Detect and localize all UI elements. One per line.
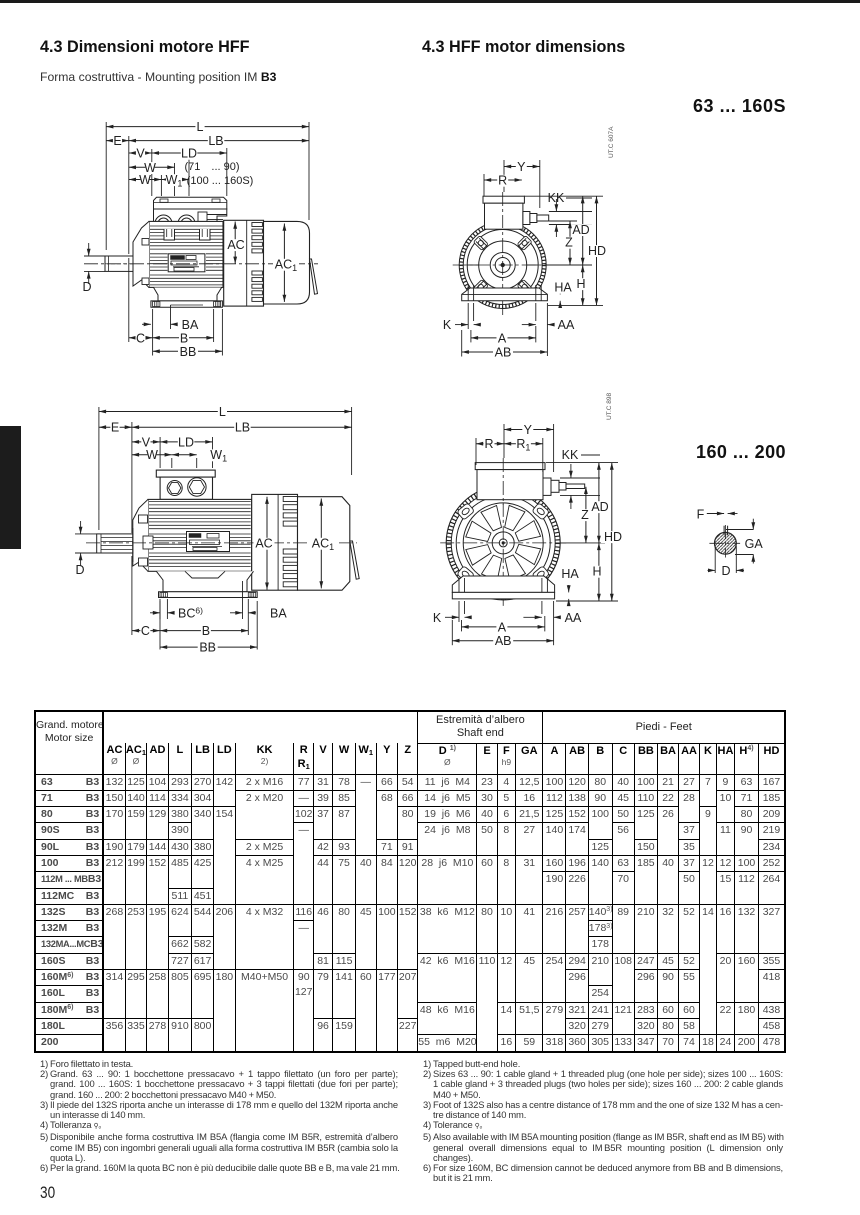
svg-text:UT.C 898: UT.C 898 bbox=[606, 393, 613, 420]
svg-text:D: D bbox=[75, 563, 84, 577]
svg-text:BA: BA bbox=[182, 318, 199, 332]
svg-text:Z: Z bbox=[565, 236, 573, 250]
svg-text:AC: AC bbox=[227, 238, 244, 252]
svg-text:K: K bbox=[443, 318, 452, 332]
svg-text:KK: KK bbox=[562, 448, 579, 462]
svg-text:H: H bbox=[576, 277, 585, 291]
svg-text:L: L bbox=[219, 405, 226, 419]
svg-text:Z: Z bbox=[581, 508, 589, 522]
svg-text:R: R bbox=[498, 174, 507, 188]
svg-text:C: C bbox=[141, 624, 150, 638]
svg-text:AB: AB bbox=[495, 346, 512, 360]
svg-text:V: V bbox=[136, 147, 145, 161]
svg-text:HA: HA bbox=[561, 567, 579, 581]
svg-text:LD: LD bbox=[178, 435, 194, 449]
svg-text:A: A bbox=[498, 331, 507, 345]
svg-text:BC6): BC6) bbox=[178, 605, 203, 620]
svg-text:(100 ... 160S): (100 ... 160S) bbox=[187, 175, 254, 187]
svg-text:K: K bbox=[433, 611, 442, 625]
svg-text:LB: LB bbox=[235, 421, 250, 435]
svg-text:E: E bbox=[111, 421, 119, 435]
svg-text:BA: BA bbox=[270, 606, 287, 620]
svg-text:BB: BB bbox=[199, 641, 216, 655]
svg-text:C: C bbox=[136, 331, 145, 345]
svg-text:AB: AB bbox=[495, 634, 512, 648]
svg-text:W: W bbox=[139, 173, 151, 187]
svg-text:E: E bbox=[113, 134, 121, 148]
svg-text:UT.C 607A: UT.C 607A bbox=[608, 126, 615, 158]
svg-text:H: H bbox=[592, 565, 601, 579]
svg-text:AD: AD bbox=[572, 223, 589, 237]
svg-text:F: F bbox=[697, 508, 705, 522]
svg-text:Y: Y bbox=[517, 160, 526, 174]
svg-text:A: A bbox=[498, 620, 507, 634]
svg-text:L: L bbox=[197, 120, 204, 134]
svg-text:W: W bbox=[146, 448, 158, 462]
svg-text:AD: AD bbox=[591, 500, 608, 514]
svg-text:HD: HD bbox=[604, 530, 622, 544]
svg-text:LB: LB bbox=[208, 134, 223, 148]
svg-text:HD: HD bbox=[588, 244, 606, 258]
svg-text:LD: LD bbox=[181, 147, 197, 161]
svg-text:B: B bbox=[202, 624, 210, 638]
svg-text:Y: Y bbox=[524, 423, 533, 437]
svg-text:BB: BB bbox=[180, 345, 197, 359]
svg-text:D: D bbox=[82, 280, 91, 294]
svg-text:(71 ... 90): (71 ... 90) bbox=[184, 161, 239, 173]
svg-text:B: B bbox=[180, 331, 188, 345]
svg-text:KK: KK bbox=[548, 191, 565, 205]
svg-text:GA: GA bbox=[745, 537, 764, 551]
svg-text:R: R bbox=[484, 437, 493, 451]
svg-text:AA: AA bbox=[558, 318, 575, 332]
svg-text:AA: AA bbox=[565, 611, 582, 625]
svg-text:D: D bbox=[721, 564, 730, 578]
svg-text:HA: HA bbox=[554, 281, 572, 295]
svg-text:AC: AC bbox=[255, 537, 272, 551]
